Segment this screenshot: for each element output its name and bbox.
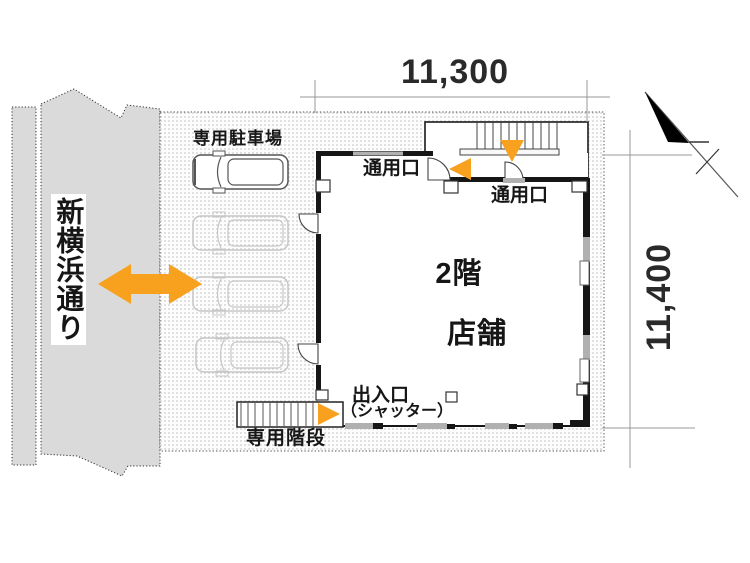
north-arrow-icon xyxy=(645,92,738,197)
parking-label: 専用駐車場 xyxy=(193,130,283,148)
car-outline-solid xyxy=(193,151,288,193)
private-stairs-label: 専用階段 xyxy=(246,429,326,449)
dimension-height-label: 11,400 xyxy=(642,227,682,367)
floor-plan-drawing xyxy=(0,0,750,563)
window-right-lower xyxy=(580,359,589,382)
shop-floor-label: 2階 店舗 xyxy=(409,259,509,349)
window-right-upper xyxy=(580,261,589,285)
dimension-width-label: 11,300 xyxy=(385,55,525,91)
site-plan: 11,300 11,400 新横浜通り 専用駐車場 通用口 通用口 2階 店舗 … xyxy=(0,0,750,563)
service-entrance-label-left: 通用口 xyxy=(363,159,420,179)
door-sill xyxy=(503,178,525,183)
street-name-label: 新横浜通り xyxy=(51,194,86,345)
road-strip-narrow xyxy=(12,107,36,465)
service-entrance-label-top: 通用口 xyxy=(491,186,548,206)
exit-shutter-label: （シャッター） xyxy=(341,404,453,421)
